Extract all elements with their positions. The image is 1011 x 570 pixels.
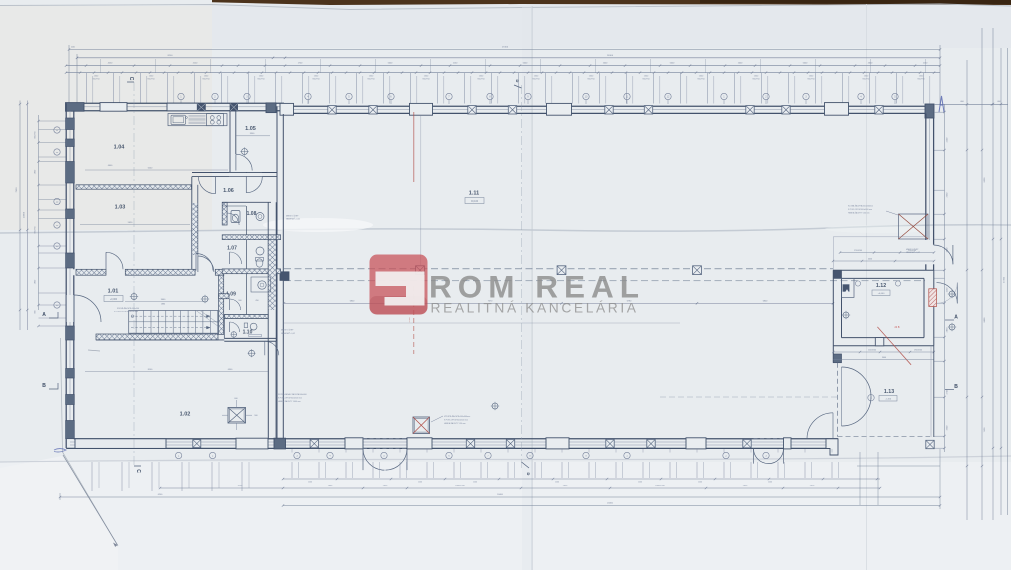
svg-text:1880: 1880 — [161, 304, 165, 306]
svg-text:900/750: 900/750 — [697, 78, 705, 80]
svg-text:B: B — [954, 384, 958, 390]
svg-text:1200: 1200 — [308, 481, 312, 483]
svg-text:1.05: 1.05 — [245, 126, 256, 132]
svg-text:900/750: 900/750 — [35, 131, 37, 139]
svg-text:KLOBA ŠACHTA 600x600mm: KLOBA ŠACHTA 600x600mm — [848, 205, 874, 208]
svg-text:+0,000: +0,000 — [878, 293, 886, 295]
svg-text:±0,100: ±0,100 — [471, 201, 479, 203]
svg-text:A: A — [42, 312, 46, 318]
svg-text:1.12: 1.12 — [876, 283, 886, 289]
svg-text:900/750: 900/750 — [367, 78, 375, 80]
svg-text:D: D — [515, 80, 520, 83]
svg-text:REALITNÁ KANCELÁRIA: REALITNÁ KANCELÁRIA — [431, 300, 639, 316]
svg-text:1200: 1200 — [418, 481, 422, 483]
svg-text:1.13: 1.13 — [884, 389, 894, 395]
svg-text:900/750: 900/750 — [147, 78, 155, 80]
svg-text:900/750: 900/750 — [477, 78, 485, 80]
svg-text:NAMERAŤ +0,02: NAMERAŤ +0,02 — [286, 218, 300, 221]
svg-text:B: B — [42, 383, 46, 389]
svg-text:1900/200: 1900/200 — [914, 349, 922, 351]
svg-text:1.11: 1.11 — [469, 191, 479, 197]
svg-text:24400: 24400 — [497, 494, 504, 496]
svg-text:900/750: 900/750 — [312, 78, 320, 80]
svg-text:1200/200: 1200/200 — [868, 349, 876, 351]
svg-text:900: 900 — [238, 300, 241, 302]
svg-text:S POKLOPOM 600x600 mm: S POKLOPOM 600x600 mm — [444, 419, 468, 421]
svg-text:1200: 1200 — [768, 481, 772, 483]
svg-text:KROVA ŠACHTA 300x500: KROVA ŠACHTA 300x500 — [117, 307, 139, 310]
svg-text:900/750: 900/750 — [92, 78, 100, 80]
svg-text:8200: 8200 — [168, 55, 174, 57]
svg-text:1200: 1200 — [698, 481, 702, 483]
svg-text:1800/1200: 1800/1200 — [655, 485, 665, 487]
svg-text:MIESTO ČERP: MIESTO ČERP — [286, 215, 299, 218]
svg-text:24400: 24400 — [607, 503, 614, 505]
svg-text:C: C — [135, 469, 141, 473]
svg-text:HĕBKA ŠACHTY 550 mm: HĕBKA ŠACHTY 550 mm — [848, 211, 870, 214]
svg-text:1.07: 1.07 — [227, 246, 237, 252]
svg-text:900/750: 900/750 — [422, 78, 430, 80]
svg-text:1200: 1200 — [555, 481, 559, 483]
svg-text:450: 450 — [255, 300, 258, 302]
svg-text:1.06: 1.06 — [223, 188, 234, 194]
svg-text:S POKLOPOM 600x600 mm: S POKLOPOM 600x600 mm — [114, 311, 138, 313]
svg-text:900: 900 — [254, 415, 257, 417]
svg-text:900/750: 900/750 — [202, 78, 210, 80]
svg-text:1.01: 1.01 — [108, 289, 119, 295]
svg-text:4050: 4050 — [868, 258, 872, 260]
svg-text:1.04: 1.04 — [114, 145, 126, 151]
svg-text:HĕBKA ŠACHTY 1000 mm: HĕBKA ŠACHTY 1000 mm — [278, 400, 301, 403]
svg-text:VPUSTA ŠACHTA 600x600mm: VPUSTA ŠACHTA 600x600mm — [444, 415, 471, 418]
svg-text:D: D — [526, 473, 531, 476]
svg-text:HĕBKA ŠACHTY 550 mm: HĕBKA ŠACHTY 550 mm — [444, 422, 466, 425]
svg-text:26300: 26300 — [607, 55, 614, 57]
svg-text:3600: 3600 — [882, 357, 886, 359]
svg-text:1.08: 1.08 — [247, 211, 257, 217]
svg-text:1700/200: 1700/200 — [854, 250, 862, 252]
svg-text:900/750: 900/750 — [752, 78, 760, 80]
svg-text:900/750: 900/750 — [532, 78, 540, 80]
svg-text:900/750: 900/750 — [642, 78, 650, 80]
svg-text:900/750: 900/750 — [807, 78, 815, 80]
svg-text:1200: 1200 — [473, 481, 477, 483]
svg-text:C: C — [128, 77, 134, 81]
svg-text:17300: 17300 — [1004, 276, 1006, 283]
svg-text:ROZVA KANAL ŠACHTA 600x900: ROZVA KANAL ŠACHTA 600x900 — [278, 393, 307, 396]
svg-text:27400: 27400 — [502, 47, 509, 49]
svg-text:7900: 7900 — [16, 187, 18, 193]
svg-text:MIESTO ČERP: MIESTO ČERP — [281, 329, 294, 332]
svg-text:2.350: 2.350 — [409, 318, 411, 323]
svg-text:600: 600 — [234, 398, 237, 400]
svg-text:24 B: 24 B — [895, 326, 900, 329]
svg-text:1.03: 1.03 — [115, 205, 126, 211]
svg-text:900/750: 900/750 — [587, 78, 595, 80]
svg-text:NAMERAŤ +0,02: NAMERAŤ +0,02 — [281, 332, 295, 335]
svg-text:900/750: 900/750 — [35, 226, 37, 234]
svg-text:1200: 1200 — [638, 481, 642, 483]
svg-text:-1,150: -1,150 — [885, 399, 892, 401]
svg-text:13800: 13800 — [24, 211, 26, 218]
svg-text:NAMERAŤ +0,02: NAMERAŤ +0,02 — [906, 251, 920, 254]
svg-text:900/750: 900/750 — [917, 78, 925, 80]
svg-text:A: A — [954, 315, 958, 321]
svg-text:S POKLOPOM 600x600 mm: S POKLOPOM 600x600 mm — [278, 397, 302, 399]
svg-text:1800/1200: 1800/1200 — [455, 485, 465, 487]
svg-text:+0,000: +0,000 — [110, 299, 118, 301]
svg-text:S POKLOPOM 600x600 mm: S POKLOPOM 600x600 mm — [848, 209, 872, 211]
svg-text:MIESTO ČERP: MIESTO ČERP — [906, 248, 919, 251]
svg-text:ROM REAL: ROM REAL — [429, 269, 645, 305]
svg-text:1.02: 1.02 — [180, 412, 191, 418]
svg-text:900/750: 900/750 — [257, 78, 265, 80]
